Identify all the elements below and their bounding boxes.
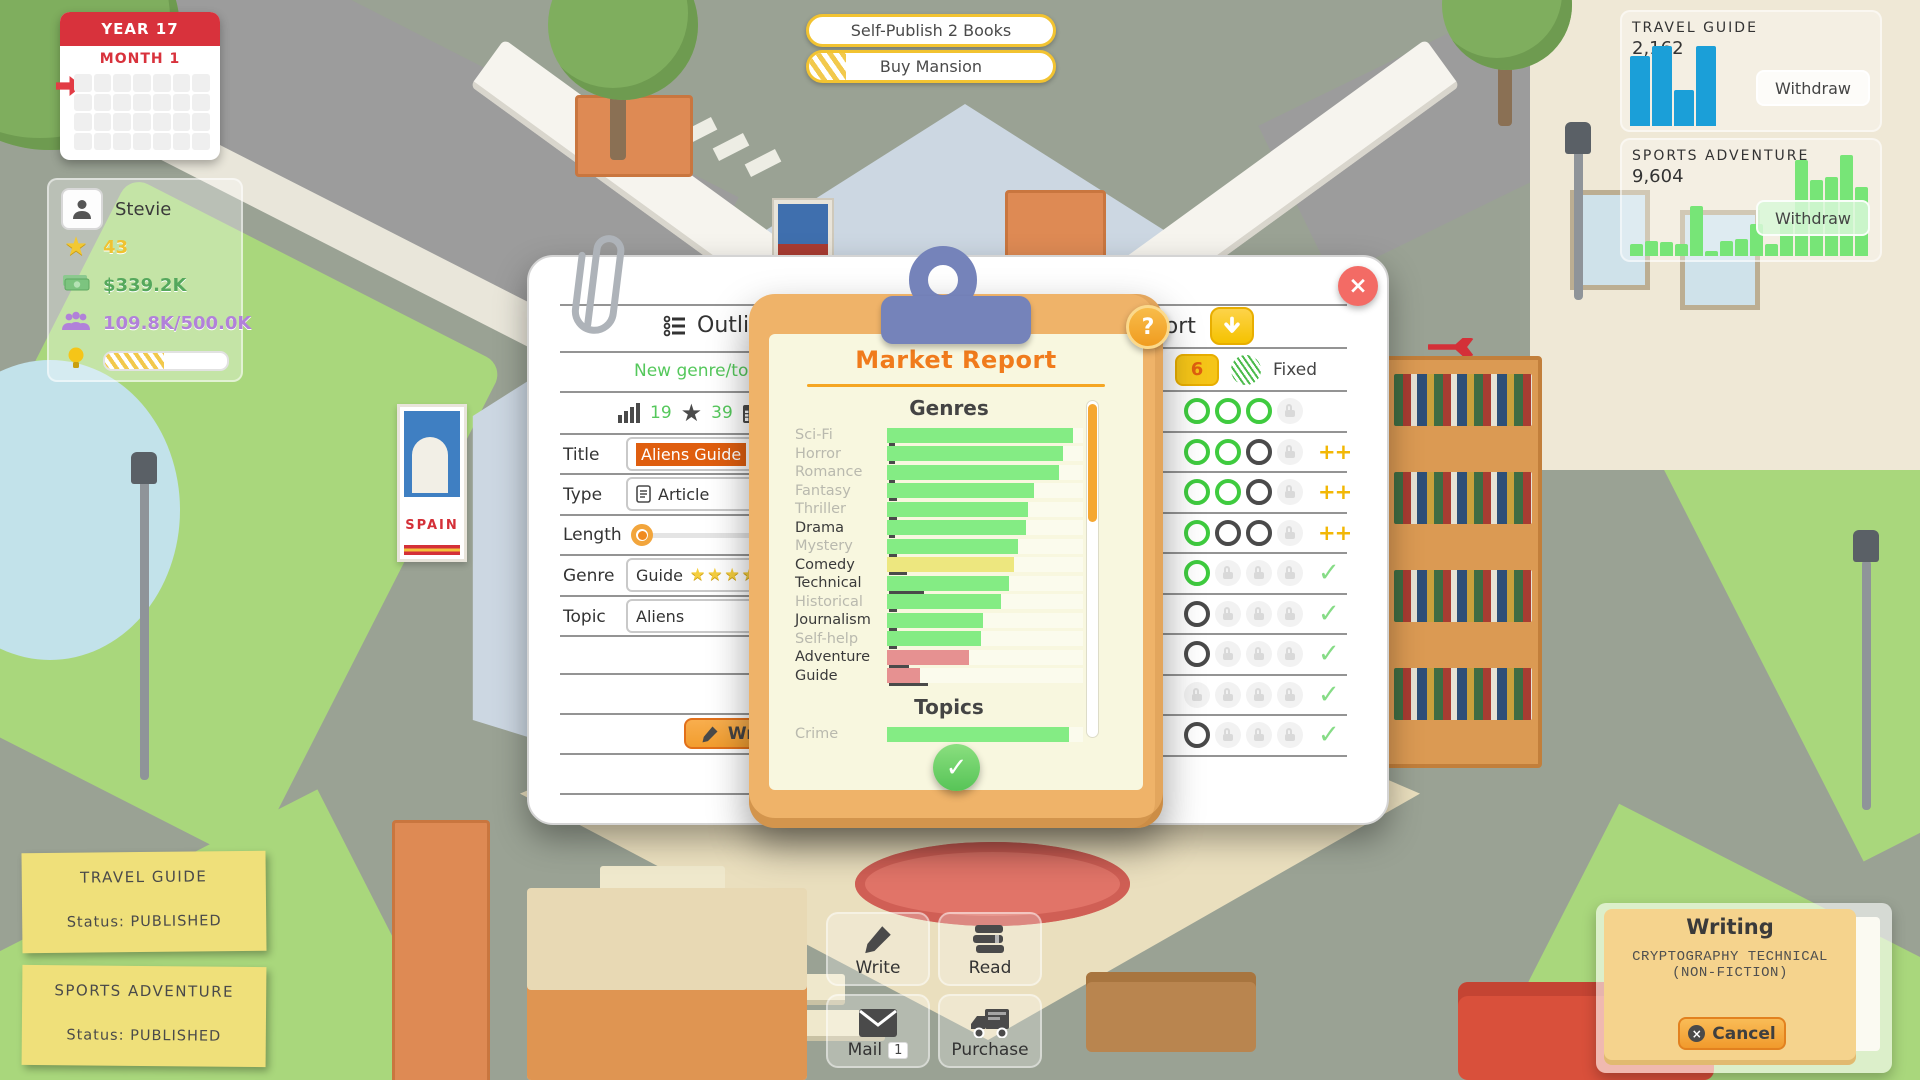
market-row-bar bbox=[887, 446, 1083, 461]
pencil-icon bbox=[861, 922, 895, 956]
market-report-scroll-area[interactable]: Genres Sci-FiHorrorRomanceFantasyThrille… bbox=[769, 392, 1129, 744]
padlock-icon bbox=[1285, 694, 1295, 701]
title-value-selected: Aliens Guide bbox=[636, 443, 746, 466]
market-row: Drama bbox=[769, 519, 1129, 538]
note-status: PUBLISHED bbox=[130, 913, 221, 930]
royalty-title: TRAVEL GUIDE bbox=[1632, 20, 1880, 36]
calendar-day-cell bbox=[192, 113, 210, 131]
fans-icon bbox=[61, 311, 91, 335]
effort-mode-label: Fixed bbox=[1273, 360, 1317, 380]
calendar-day-cell bbox=[94, 113, 112, 131]
type-value: Article bbox=[658, 485, 709, 504]
chart-bar bbox=[1705, 251, 1718, 256]
note-status-label: Status: bbox=[66, 1027, 124, 1044]
envelope-icon bbox=[858, 1008, 898, 1038]
note-title: TRAVEL GUIDE bbox=[22, 867, 266, 888]
locked-slot-icon bbox=[1277, 560, 1303, 586]
market-row-bar bbox=[887, 668, 1083, 683]
calendar-day-cell bbox=[173, 113, 191, 131]
effort-slot-circle[interactable] bbox=[1184, 520, 1210, 546]
effort-slot-row: ✓ bbox=[1157, 595, 1347, 636]
cancel-label: Cancel bbox=[1712, 1024, 1775, 1044]
avatar bbox=[61, 188, 103, 230]
calendar-day-cell bbox=[192, 94, 210, 112]
topics-heading: Topics bbox=[769, 691, 1129, 725]
bonus-plus-indicator: ++ bbox=[1318, 440, 1351, 464]
market-row-label: Adventure bbox=[769, 649, 887, 665]
xp-star-icon: ★ bbox=[61, 232, 91, 262]
locked-slot-icon bbox=[1246, 722, 1272, 748]
effort-slot-row: ✓ bbox=[1157, 554, 1347, 595]
cancel-writing-button[interactable]: × Cancel bbox=[1678, 1017, 1786, 1050]
market-row-bar bbox=[887, 557, 1083, 572]
market-row-bar bbox=[887, 727, 1083, 742]
buy-mansion-label: Buy Mansion bbox=[880, 57, 982, 76]
note-status: PUBLISHED bbox=[130, 1028, 221, 1045]
clip-plate bbox=[881, 296, 1031, 344]
market-row-label: Historical bbox=[769, 594, 887, 610]
chart-bar bbox=[1630, 244, 1643, 256]
market-row-bar bbox=[887, 539, 1083, 554]
market-row-bar bbox=[887, 502, 1083, 517]
outline-list-icon bbox=[663, 314, 687, 338]
chart-bar bbox=[1675, 244, 1688, 256]
book-stats-row: 19 ★ 39 bbox=[617, 399, 764, 427]
effort-slot-circle[interactable] bbox=[1184, 439, 1210, 465]
length-slider-knob[interactable] bbox=[631, 524, 653, 546]
royalty-panel-sports-adventure: SPORTS ADVENTURE 9,604 Withdraw bbox=[1620, 138, 1882, 262]
effort-slot-circle[interactable] bbox=[1215, 479, 1241, 505]
locked-slot-icon bbox=[1277, 641, 1303, 667]
money-icon bbox=[61, 273, 91, 297]
market-row: Crime bbox=[769, 725, 1129, 744]
upstairs-wall bbox=[575, 95, 693, 177]
lamp-head bbox=[131, 452, 157, 484]
type-field-label: Type bbox=[563, 485, 602, 505]
book-row bbox=[1394, 472, 1532, 524]
published-note-travel-guide: TRAVEL GUIDE Status: PUBLISHED bbox=[21, 851, 266, 954]
poster-text: SPAIN bbox=[400, 518, 464, 533]
effort-slot-circle[interactable] bbox=[1215, 398, 1241, 424]
locked-slot-icon bbox=[1246, 560, 1272, 586]
mail-action-button[interactable]: Mail 1 bbox=[826, 994, 930, 1068]
calendar-day-cell bbox=[192, 74, 210, 92]
padlock-icon bbox=[1223, 613, 1233, 620]
padlock-icon bbox=[1223, 734, 1233, 741]
market-row: Historical bbox=[769, 593, 1129, 612]
market-report-page: Market Report Genres Sci-FiHorrorRomance… bbox=[769, 334, 1143, 790]
lamp-post bbox=[1862, 560, 1871, 810]
padlock-icon bbox=[1254, 734, 1264, 741]
completed-check-icon: ✓ bbox=[1318, 558, 1340, 588]
effort-panel: fort 6 Fixed ++++++✓✓✓✓✓ bbox=[1157, 305, 1347, 757]
spain-poster: SPAIN bbox=[397, 404, 467, 562]
purchase-action-button[interactable]: Purchase bbox=[938, 994, 1042, 1068]
market-row: Sci-Fi bbox=[769, 426, 1129, 445]
calendar-day-cell bbox=[153, 133, 171, 151]
locked-slot-icon bbox=[1277, 682, 1303, 708]
locked-slot-icon bbox=[1277, 398, 1303, 424]
padlock-icon bbox=[1285, 491, 1295, 498]
withdraw-button[interactable]: Withdraw bbox=[1756, 200, 1870, 236]
topic-list: Crime bbox=[769, 725, 1129, 744]
market-row-label: Self-help bbox=[769, 631, 887, 647]
fans-value: 109.8K/500.0K bbox=[103, 313, 251, 334]
padlock-icon bbox=[1254, 613, 1264, 620]
padlock-icon bbox=[1223, 653, 1233, 660]
market-row: Self-help bbox=[769, 630, 1129, 649]
withdraw-label: Withdraw bbox=[1775, 79, 1851, 98]
market-row-label: Drama bbox=[769, 520, 887, 536]
self-publish-button[interactable]: Self-Publish 2 Books bbox=[806, 14, 1056, 47]
calendar-day-cell bbox=[74, 113, 92, 131]
market-row-label: Thriller bbox=[769, 501, 887, 517]
locked-slot-icon bbox=[1215, 601, 1241, 627]
padlock-icon bbox=[1254, 653, 1264, 660]
calendar-day-cell bbox=[153, 113, 171, 131]
write-action-label: Write bbox=[856, 958, 901, 978]
market-row-label: Horror bbox=[769, 446, 887, 462]
market-report-title: Market Report bbox=[769, 346, 1143, 374]
calendar-day-cell bbox=[74, 94, 92, 112]
chart-bar bbox=[1696, 46, 1716, 126]
padlock-icon bbox=[1223, 572, 1233, 579]
effort-slot-circle[interactable] bbox=[1184, 641, 1210, 667]
rating-star-icon: ★ bbox=[681, 399, 703, 427]
calendar-day-cell bbox=[113, 94, 131, 112]
chart-bar bbox=[1765, 244, 1778, 256]
padlock-icon bbox=[1254, 694, 1264, 701]
withdraw-label: Withdraw bbox=[1775, 209, 1851, 228]
effort-slot-row: ✓ bbox=[1157, 635, 1347, 676]
table bbox=[1086, 972, 1256, 1052]
chart-bar bbox=[1645, 241, 1658, 256]
self-publish-label: Self-Publish 2 Books bbox=[851, 21, 1012, 40]
calendar-day-cell bbox=[173, 74, 191, 92]
books-icon bbox=[971, 922, 1009, 956]
title-underline bbox=[807, 384, 1105, 387]
chart-bar bbox=[1720, 241, 1733, 256]
book-row bbox=[1394, 570, 1532, 622]
effort-slot-row: ++ bbox=[1157, 473, 1347, 514]
genre-field-label: Genre bbox=[563, 566, 614, 586]
padlock-icon bbox=[1254, 572, 1264, 579]
withdraw-button[interactable]: Withdraw bbox=[1756, 70, 1870, 106]
market-row-bar bbox=[887, 650, 1083, 665]
chart-bar bbox=[1674, 90, 1694, 126]
completed-check-icon: ✓ bbox=[1318, 639, 1340, 669]
padlock-icon bbox=[1285, 572, 1295, 579]
locked-slot-icon bbox=[1277, 601, 1303, 627]
padlock-icon bbox=[1285, 410, 1295, 417]
effort-slot-row: ++ bbox=[1157, 433, 1347, 474]
confirm-check-button[interactable]: ✓ bbox=[933, 744, 980, 791]
locked-slot-icon bbox=[1215, 560, 1241, 586]
poster-flag bbox=[404, 545, 460, 555]
calendar-day-cell bbox=[133, 74, 151, 92]
locked-slot-icon bbox=[1277, 520, 1303, 546]
padlock-icon bbox=[1285, 653, 1295, 660]
scrollbar-thumb[interactable] bbox=[1088, 404, 1097, 522]
lamp-post bbox=[140, 480, 149, 780]
padlock-icon bbox=[1285, 532, 1295, 539]
market-row-bar bbox=[887, 520, 1083, 535]
lamp-post bbox=[1574, 150, 1583, 300]
market-row-label: Crime bbox=[769, 726, 887, 742]
padlock-icon bbox=[1285, 734, 1295, 741]
lamp-head bbox=[1565, 122, 1591, 154]
buy-mansion-progress bbox=[809, 53, 846, 80]
inspiration-bulb-icon bbox=[61, 346, 91, 376]
title-field-label: Title bbox=[563, 445, 599, 465]
market-row-label: Comedy bbox=[769, 557, 887, 573]
completed-check-icon: ✓ bbox=[1318, 720, 1340, 750]
effort-slot-circle[interactable] bbox=[1184, 601, 1210, 627]
genre-list: Sci-FiHorrorRomanceFantasyThrillerDramaM… bbox=[769, 426, 1129, 685]
market-row-bar bbox=[887, 483, 1083, 498]
calendar-day-cell bbox=[113, 74, 131, 92]
down-arrow-icon bbox=[1222, 316, 1242, 336]
pencil-icon bbox=[700, 724, 720, 744]
rating-value: 39 bbox=[711, 403, 733, 423]
crosswalk bbox=[745, 149, 782, 177]
sales-chart-icon bbox=[617, 402, 641, 424]
effort-value-badge: 6 bbox=[1175, 354, 1219, 386]
truck-icon bbox=[969, 1008, 1011, 1038]
effort-slot-row: ++ bbox=[1157, 514, 1347, 555]
market-row-bar bbox=[887, 576, 1083, 591]
writing-book-title: CRYPTOGRAPHY TECHNICAL bbox=[1604, 949, 1856, 965]
market-row: Mystery bbox=[769, 537, 1129, 556]
chart-bar bbox=[1660, 242, 1673, 256]
note-status-label: Status: bbox=[67, 914, 125, 931]
genres-heading: Genres bbox=[769, 392, 1129, 426]
market-row: Fantasy bbox=[769, 482, 1129, 501]
calendar-day-cell bbox=[113, 113, 131, 131]
padlock-icon bbox=[1192, 694, 1202, 701]
close-dialog-button[interactable]: × bbox=[1338, 266, 1378, 306]
write-action-button[interactable]: Write bbox=[826, 912, 930, 986]
market-row-label: Romance bbox=[769, 464, 887, 480]
effort-slot-circle[interactable] bbox=[1215, 439, 1241, 465]
document-icon bbox=[636, 485, 651, 503]
market-row: Comedy bbox=[769, 556, 1129, 575]
topic-field-label: Topic bbox=[563, 607, 606, 627]
game-screen: SPAIN YEAR 17 MONTH 1 Stevie ★ 43 bbox=[0, 0, 1920, 1080]
writing-panel-title: Writing bbox=[1604, 915, 1856, 939]
completed-check-icon: ✓ bbox=[1318, 599, 1340, 629]
market-row-bar bbox=[887, 428, 1083, 443]
locked-slot-icon bbox=[1277, 479, 1303, 505]
effort-slot-circle[interactable] bbox=[1184, 398, 1210, 424]
calendar-day-cell bbox=[74, 133, 92, 151]
market-row-label: Technical bbox=[769, 575, 887, 591]
padlock-icon bbox=[1285, 451, 1295, 458]
chart-bar bbox=[1735, 239, 1748, 256]
tree-trunk bbox=[610, 90, 626, 160]
calendar-day-cell bbox=[94, 133, 112, 151]
help-button[interactable]: ? bbox=[1126, 305, 1170, 349]
locked-slot-icon bbox=[1215, 682, 1241, 708]
market-row-label: Fantasy bbox=[769, 483, 887, 499]
inspiration-bar bbox=[103, 351, 229, 371]
effort-slot-rows: ++++++✓✓✓✓✓ bbox=[1157, 392, 1347, 757]
effort-slot-circle[interactable] bbox=[1246, 520, 1272, 546]
note-title: SPORTS ADVENTURE bbox=[22, 981, 266, 1001]
calendar-day-cell bbox=[133, 113, 151, 131]
effort-slot-circle[interactable] bbox=[1184, 479, 1210, 505]
lamp-head bbox=[1853, 530, 1879, 562]
padlock-icon bbox=[1285, 613, 1295, 620]
player-stats-panel: Stevie ★ 43 $339.2K 109.8K/500.0K bbox=[47, 178, 243, 382]
market-row: Journalism bbox=[769, 611, 1129, 630]
player-name: Stevie bbox=[115, 199, 171, 220]
book-row bbox=[1394, 668, 1532, 720]
market-row-label: Journalism bbox=[769, 612, 887, 628]
cancel-x-icon: × bbox=[1688, 1025, 1705, 1042]
effort-slot-row: ✓ bbox=[1157, 716, 1347, 757]
purchase-action-label: Purchase bbox=[951, 1040, 1028, 1060]
market-row-label: Mystery bbox=[769, 538, 887, 554]
sales-value: 19 bbox=[650, 403, 672, 423]
folder-front: Writing CRYPTOGRAPHY TECHNICAL (NON-FICT… bbox=[1604, 909, 1856, 1065]
effort-slot-circle[interactable] bbox=[1184, 560, 1210, 586]
locked-slot-icon bbox=[1184, 682, 1210, 708]
crosswalk bbox=[713, 133, 750, 161]
calendar-day-cell bbox=[173, 133, 191, 151]
chart-bar bbox=[1690, 206, 1703, 256]
calendar-day-cell bbox=[173, 94, 191, 112]
locked-slot-icon bbox=[1246, 682, 1272, 708]
calendar-day-cell bbox=[133, 94, 151, 112]
market-row: Romance bbox=[769, 463, 1129, 482]
read-action-button[interactable]: Read bbox=[938, 912, 1042, 986]
market-scrollbar[interactable] bbox=[1086, 400, 1099, 738]
market-report-clipboard: Market Report Genres Sci-FiHorrorRomance… bbox=[749, 294, 1163, 828]
market-row: Guide bbox=[769, 667, 1129, 686]
money-value: $339.2K bbox=[103, 275, 186, 296]
length-field-label: Length bbox=[563, 525, 622, 545]
effort-slot-row bbox=[1157, 392, 1347, 433]
read-action-label: Read bbox=[969, 958, 1012, 978]
chart-bar bbox=[1630, 56, 1650, 126]
effort-slot-circle[interactable] bbox=[1215, 520, 1241, 546]
effort-slot-circle[interactable] bbox=[1246, 479, 1272, 505]
calendar-year: YEAR 17 bbox=[60, 12, 220, 46]
genre-value: Guide bbox=[636, 566, 683, 585]
calendar-day-cell bbox=[113, 133, 131, 151]
writing-book-subtitle: (NON-FICTION) bbox=[1604, 965, 1856, 981]
calendar-day-cell bbox=[94, 94, 112, 112]
market-row: Thriller bbox=[769, 500, 1129, 519]
effort-slot-circle[interactable] bbox=[1184, 722, 1210, 748]
royalty-panel-travel-guide: TRAVEL GUIDE 2,162 Withdraw bbox=[1620, 10, 1882, 132]
bonus-plus-indicator: ++ bbox=[1318, 480, 1351, 504]
writing-status-panel: Writing CRYPTOGRAPHY TECHNICAL (NON-FICT… bbox=[1596, 903, 1892, 1073]
calendar-widget: YEAR 17 MONTH 1 bbox=[60, 12, 220, 160]
calendar-month: MONTH 1 bbox=[60, 51, 220, 67]
market-row: Adventure bbox=[769, 648, 1129, 667]
market-row: Horror bbox=[769, 445, 1129, 464]
effort-slot-circle[interactable] bbox=[1246, 439, 1272, 465]
market-row-label: Guide bbox=[769, 668, 887, 684]
calendar-day-cell bbox=[94, 74, 112, 92]
topic-value: Aliens bbox=[636, 607, 684, 626]
bonus-plus-indicator: ++ bbox=[1318, 521, 1351, 545]
market-row-label: Sci-Fi bbox=[769, 427, 887, 443]
buy-mansion-button[interactable]: Buy Mansion bbox=[806, 50, 1056, 83]
published-note-sports-adventure: SPORTS ADVENTURE Status: PUBLISHED bbox=[22, 965, 267, 1067]
toy-plane bbox=[1428, 338, 1474, 356]
person-icon bbox=[70, 197, 94, 221]
locked-slot-icon bbox=[1277, 439, 1303, 465]
mail-action-label: Mail bbox=[848, 1040, 883, 1060]
effort-slot-row: ✓ bbox=[1157, 676, 1347, 717]
effort-hatch-icon bbox=[1231, 355, 1261, 385]
calendar-day-cell bbox=[133, 133, 151, 151]
effort-decrease-button[interactable] bbox=[1210, 307, 1254, 345]
calendar-grid bbox=[74, 74, 210, 150]
padlock-icon bbox=[1223, 694, 1233, 701]
calendar-day-cell bbox=[153, 94, 171, 112]
chart-bar bbox=[1652, 46, 1672, 126]
calendar-day-cell bbox=[192, 133, 210, 151]
completed-check-icon: ✓ bbox=[1318, 680, 1340, 710]
xp-value: 43 bbox=[103, 237, 128, 258]
calendar-day-cell bbox=[153, 74, 171, 92]
locked-slot-icon bbox=[1246, 601, 1272, 627]
market-row: Technical bbox=[769, 574, 1129, 593]
royalty-chart bbox=[1630, 46, 1716, 126]
book-row bbox=[1394, 374, 1532, 426]
market-row-bar bbox=[887, 594, 1083, 609]
locked-slot-icon bbox=[1277, 722, 1303, 748]
locked-slot-icon bbox=[1215, 722, 1241, 748]
bookshelf bbox=[1384, 356, 1542, 768]
effort-slot-circle[interactable] bbox=[1246, 398, 1272, 424]
tree bbox=[548, 0, 698, 100]
locked-slot-icon bbox=[1246, 641, 1272, 667]
calendar-day-cell bbox=[74, 74, 92, 92]
mail-badge: 1 bbox=[888, 1042, 908, 1059]
market-row-bar bbox=[887, 613, 1083, 628]
market-row-bar bbox=[887, 465, 1083, 480]
locked-slot-icon bbox=[1215, 641, 1241, 667]
door bbox=[392, 820, 490, 1080]
kitchen-counter bbox=[527, 888, 807, 1080]
inspiration-fill bbox=[105, 353, 164, 369]
market-row-bar bbox=[887, 631, 1083, 646]
poster-art bbox=[412, 437, 448, 493]
